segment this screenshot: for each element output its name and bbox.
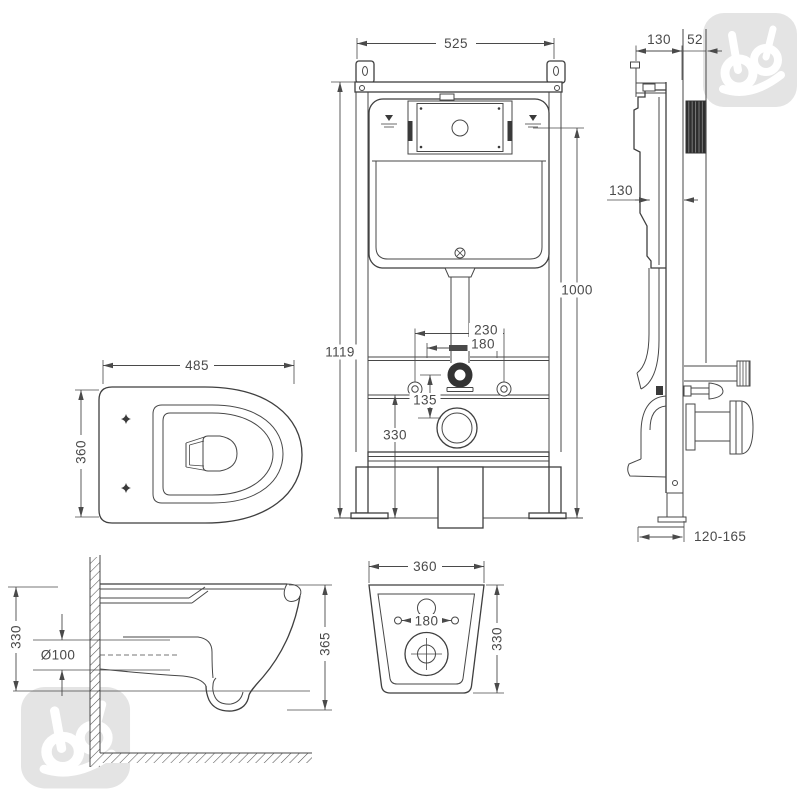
dim-label: 525 — [444, 36, 468, 51]
panel-top-tab — [440, 94, 454, 100]
dim-label: 135 — [413, 393, 437, 408]
wall-hatch — [90, 557, 100, 767]
dim-hole-spacing: 180 — [402, 614, 451, 629]
panel-clip-left — [408, 121, 413, 141]
dim-fixing-height: 330 — [8, 587, 58, 691]
dim-label: Ø100 — [41, 648, 76, 663]
mount-tab-right — [547, 61, 565, 83]
bar-screw-right — [555, 86, 560, 91]
drawing-canvas: 525 1119 1000 230 180 — [0, 0, 800, 800]
cistern-fitting — [643, 84, 655, 91]
seat-ring-inner — [163, 413, 273, 495]
cistern-profile — [634, 90, 666, 268]
dim-label: 330 — [490, 627, 505, 651]
side-foot-plate — [658, 517, 686, 522]
dim-outlet-diameter: Ø100 — [33, 614, 177, 696]
frame-top-bar — [355, 82, 562, 92]
fixing-bolt-right — [497, 382, 511, 396]
floor-hatch — [100, 753, 312, 763]
brand-logo-watermark-bottom-left — [21, 687, 130, 789]
drain-elbow-side — [641, 396, 666, 459]
dim-label: 365 — [318, 632, 333, 656]
panel-clip-right — [508, 121, 513, 141]
side-foot — [667, 493, 683, 517]
brand-logo-watermark-top-right — [703, 13, 797, 107]
dim-label: 1000 — [561, 283, 593, 298]
seat-ring-outer — [153, 405, 283, 503]
frame-foot-right — [549, 467, 561, 513]
pan-profile — [100, 584, 301, 711]
frame-front-view: 525 1119 1000 230 180 — [320, 36, 597, 528]
access-panel — [417, 104, 503, 152]
dim-label: 130 — [647, 32, 671, 47]
rail-hole — [673, 481, 678, 486]
rail-bolt — [656, 386, 663, 395]
pan-top-view: 485 360 — [74, 358, 303, 523]
dim-frame-total-height: 1119 — [320, 82, 360, 518]
water-supply-connector — [684, 361, 750, 386]
dim-label: 130 — [609, 183, 633, 198]
dim-frame-depth: 130 — [636, 32, 682, 80]
drain-socket — [437, 408, 477, 448]
dim-frame-width: 525 — [357, 36, 554, 59]
dim-label: 1119 — [325, 345, 355, 360]
dim-label: 485 — [185, 358, 209, 373]
mount-tab-left — [356, 61, 374, 83]
fixing-marker-icon — [121, 414, 131, 424]
dim-floor-adjust-range: 120-165 — [638, 521, 746, 544]
fixing-marker-icon — [121, 483, 131, 493]
fixing-hole-right — [452, 617, 459, 624]
drain-outlet-connector — [686, 401, 753, 454]
dim-pan-depth: 360 — [74, 390, 100, 517]
dim-label: 330 — [9, 625, 24, 649]
dim-label: 330 — [383, 428, 407, 443]
dim-flush-to-drain: 135 — [410, 375, 442, 418]
pan-back-view: 360 180 330 — [369, 559, 505, 693]
flush-pipe-flange — [445, 268, 475, 277]
bar-screw-left — [360, 86, 365, 91]
fixing-hole-left — [395, 617, 402, 624]
flush-elbow-side — [637, 268, 649, 373]
toilet-installation-technical-drawing: 525 1119 1000 230 180 — [0, 0, 800, 800]
dim-label: 180 — [471, 337, 495, 352]
drain-box — [438, 467, 483, 528]
frame-foot-left — [356, 467, 368, 513]
bowl-funnel — [186, 436, 237, 471]
dim-label: 52 — [687, 32, 703, 47]
bracket-cap — [631, 62, 640, 68]
dim-label: 180 — [415, 614, 439, 629]
dim-cistern-depth: 130 — [607, 183, 698, 200]
dim-label: 360 — [74, 440, 89, 464]
dim-label: 230 — [474, 323, 498, 338]
wall-bracket-hatched — [686, 101, 706, 153]
dim-pan-width: 485 — [103, 358, 294, 384]
dim-back-width: 360 — [369, 559, 484, 583]
inlet-valve — [684, 383, 723, 399]
dim-label: 360 — [413, 559, 437, 574]
dim-label: 120-165 — [694, 529, 746, 544]
